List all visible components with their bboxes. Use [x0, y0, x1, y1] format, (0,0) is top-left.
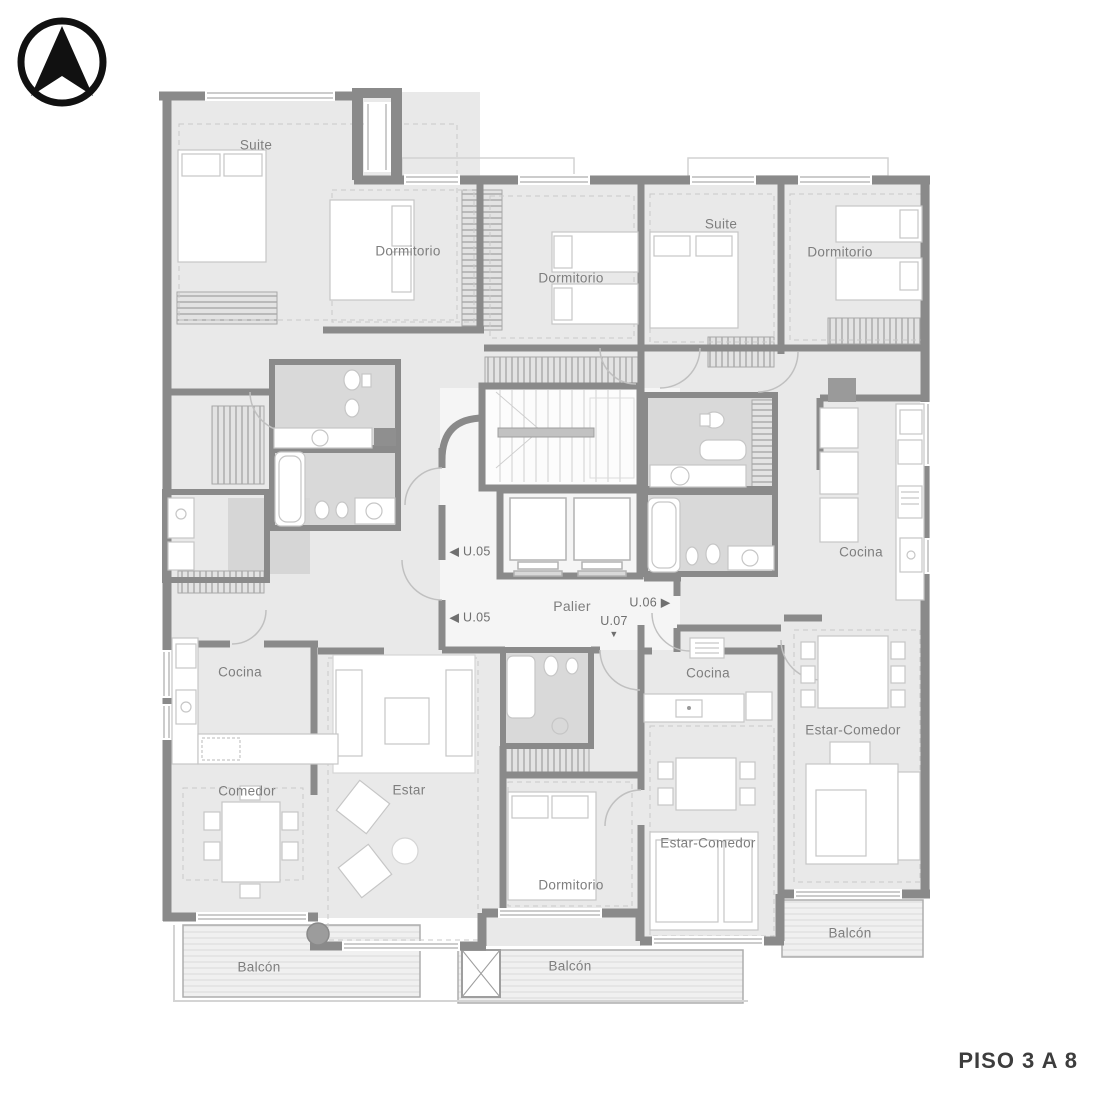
unit-marker-u06: U.06 ▶	[629, 595, 670, 610]
room-label-suite-tl: Suite	[240, 138, 272, 153]
room-label-comedor: Comedor	[218, 784, 276, 799]
bed-suite-tc	[650, 232, 738, 328]
plan-canvas: Suite Dormitorio Dormitorio Suite Dormit…	[0, 0, 1100, 1100]
room-label-balcon-left: Balcón	[237, 960, 280, 975]
unit-marker-u07-arrow: ▼	[609, 629, 618, 639]
room-label-dormitorio-tl: Dormitorio	[375, 244, 440, 259]
room-label-estar-comedor-center: Estar-Comedor	[660, 836, 755, 851]
room-label-dormitorio-bc: Dormitorio	[538, 878, 603, 893]
unit-marker-u05-lower: ◀ U.05	[449, 610, 490, 625]
room-label-cocina-center: Cocina	[686, 666, 730, 681]
room-label-dormitorio-tr: Dormitorio	[807, 245, 872, 260]
floor-plan-drawing	[0, 0, 1100, 1100]
unit-marker-u07: U.07	[600, 614, 628, 628]
room-label-cocina-right: Cocina	[839, 545, 883, 560]
unit-marker-u05-upper: ◀ U.05	[449, 544, 490, 559]
balcony-left	[183, 925, 420, 997]
bed-suite-tl	[178, 150, 266, 262]
column	[307, 923, 329, 945]
elevator-right-cab	[574, 498, 630, 560]
room-label-estar-comedor-right: Estar-Comedor	[805, 723, 900, 738]
room-label-palier: Palier	[553, 598, 591, 614]
elevator-left-cab	[510, 498, 566, 560]
room-label-dormitorio-tc: Dormitorio	[538, 271, 603, 286]
laundry-fixtures	[168, 498, 194, 570]
balcony-divider	[462, 950, 500, 997]
room-label-balcon-center: Balcón	[548, 959, 591, 974]
room-label-suite-tc: Suite	[705, 217, 737, 232]
room-label-balcon-right: Balcón	[828, 926, 871, 941]
room-label-cocina-left: Cocina	[218, 665, 262, 680]
room-label-estar: Estar	[392, 783, 425, 798]
floor-title: PISO 3 A 8	[958, 1048, 1078, 1074]
